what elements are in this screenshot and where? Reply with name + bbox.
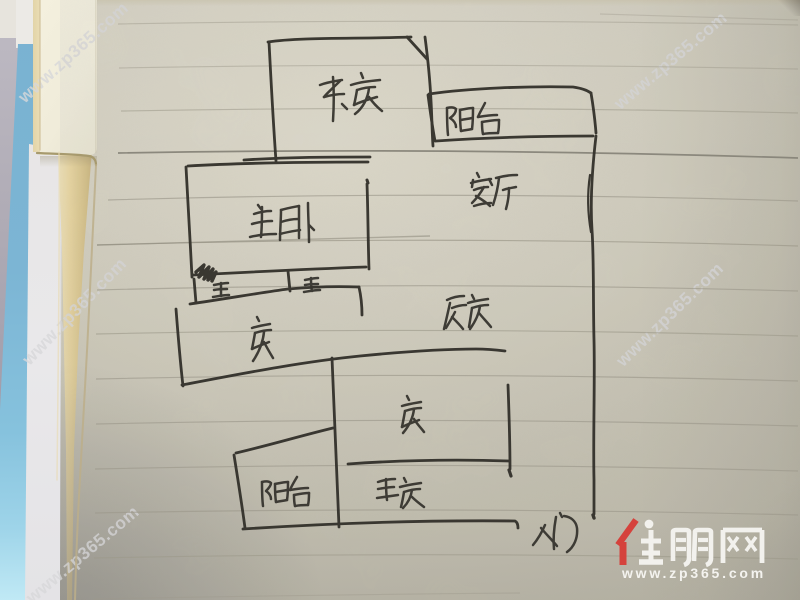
svg-text:www.zp365.com: www.zp365.com: [621, 565, 766, 581]
